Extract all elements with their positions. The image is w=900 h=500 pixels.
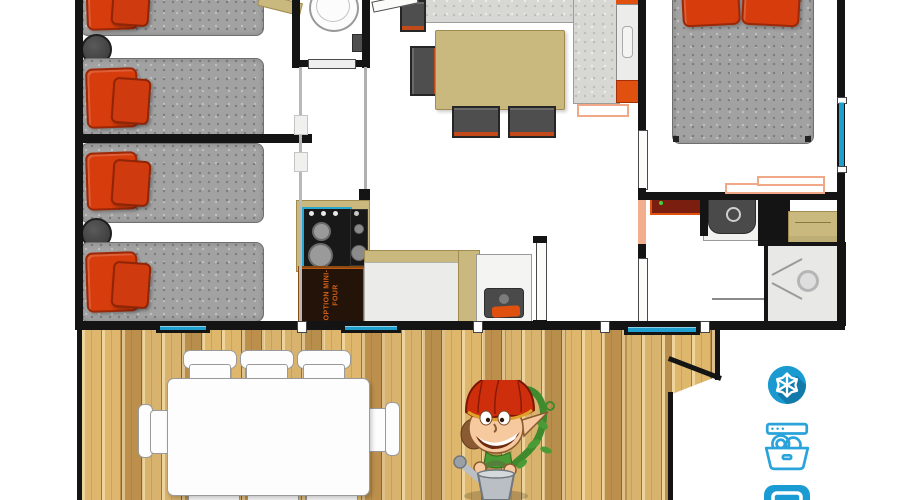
wc-door xyxy=(308,59,356,69)
option-mini-four-cabinet: OPTION MINI-FOUR xyxy=(298,266,366,324)
wall-wc-right xyxy=(362,0,370,68)
shower-drain xyxy=(797,270,819,292)
washbasin-drain xyxy=(726,207,741,222)
bed-pillow xyxy=(110,159,151,208)
radiator xyxy=(577,104,629,117)
mascot-illustration xyxy=(438,380,570,500)
partition-pole xyxy=(364,67,367,189)
snowflake-icon xyxy=(766,364,808,406)
dining-table xyxy=(435,30,565,110)
cooktop-burner xyxy=(354,224,364,234)
wall-connector xyxy=(473,321,483,333)
dining-chair xyxy=(452,106,500,138)
bathroom-black-cabinet xyxy=(758,194,790,246)
wall-basin-divider xyxy=(700,196,708,236)
dishwasher-icon xyxy=(761,421,813,473)
deck-edge-right-upper xyxy=(715,330,720,380)
wall-wc-left xyxy=(292,0,300,68)
radiator-indicator xyxy=(659,201,663,205)
wall-centre-right xyxy=(638,0,646,130)
radiator-strip xyxy=(638,200,646,244)
bathroom-door xyxy=(638,258,648,322)
wall-centre-right xyxy=(638,244,646,258)
bed-pillow xyxy=(741,0,801,27)
vine-tendril xyxy=(546,402,554,410)
can-top xyxy=(478,470,514,478)
dining-chair xyxy=(508,106,556,138)
bed-foot xyxy=(805,136,811,142)
bed-pillow xyxy=(110,261,151,310)
cooktop-burner xyxy=(312,222,331,241)
interior-door xyxy=(638,130,648,190)
cooktop-knob xyxy=(354,211,359,216)
bed-foot xyxy=(673,136,679,142)
wall-stub xyxy=(359,189,370,200)
kitchen-worktop xyxy=(364,262,460,322)
mascot-eye xyxy=(498,411,510,425)
window xyxy=(160,326,206,330)
cooktop-knob xyxy=(321,211,326,216)
window-cap xyxy=(837,166,847,173)
floorplan-canvas: OPTION MINI-FOUR xyxy=(0,0,900,500)
wardrobe-outline xyxy=(757,176,825,186)
can-rose xyxy=(454,456,466,468)
mascot-pupil xyxy=(486,418,490,422)
wall-connector xyxy=(700,321,710,333)
kitchen-counter-side xyxy=(573,0,620,104)
deck-chair xyxy=(385,402,400,456)
wall-left xyxy=(75,0,83,330)
cooktop-knob xyxy=(333,211,338,216)
sink-faucet xyxy=(499,294,509,304)
entrance-door xyxy=(536,240,547,326)
cooktop-burner xyxy=(308,243,333,268)
towel-bar xyxy=(712,298,764,300)
door-hinge xyxy=(533,236,547,243)
mascot-eye xyxy=(480,411,492,425)
door-hinge xyxy=(533,320,547,327)
cooktop-knob xyxy=(309,211,314,216)
vine-leaf xyxy=(539,445,552,455)
deck-edge-left xyxy=(77,330,82,500)
window xyxy=(839,102,844,166)
bed-pillow xyxy=(110,77,151,126)
deck-table xyxy=(167,378,370,496)
bathroom-counter-line xyxy=(795,222,831,223)
option-mini-four-label: OPTION MINI-FOUR xyxy=(323,269,342,321)
mascot-pupil xyxy=(500,418,504,422)
wall-connector xyxy=(600,321,610,333)
door-frame-mark xyxy=(294,152,308,172)
wall-connector xyxy=(297,321,307,333)
sink-accent xyxy=(492,305,521,317)
window xyxy=(345,326,397,330)
fridge-handle xyxy=(622,26,633,58)
tv-icon xyxy=(763,484,811,500)
kitchen-counter-top xyxy=(415,0,575,23)
deck-edge-right-lower xyxy=(668,392,673,500)
bed-pillow xyxy=(110,0,151,27)
door-frame-mark xyxy=(294,115,308,135)
window xyxy=(628,327,696,332)
wall-bedroom-divider xyxy=(75,134,312,143)
partition-corridor xyxy=(299,67,302,322)
bed-pillow xyxy=(681,0,741,27)
